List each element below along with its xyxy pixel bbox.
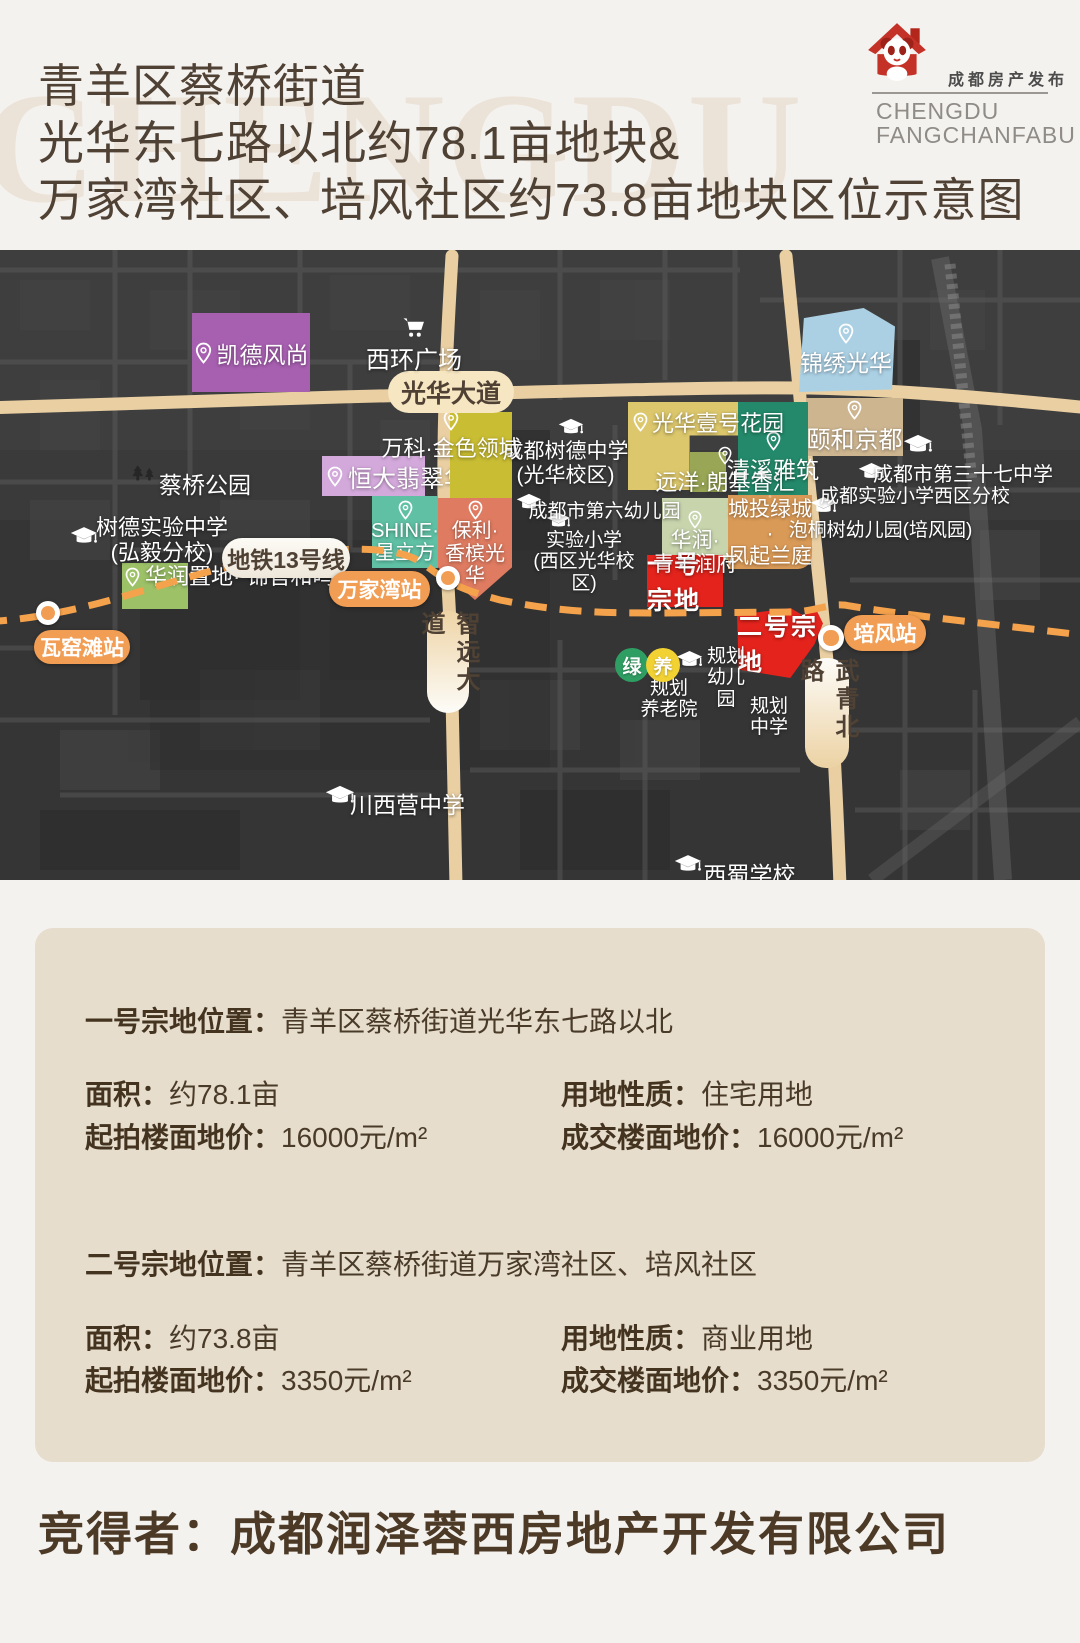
- school-cap-icon: [558, 418, 584, 438]
- plot1-location-value: 青羊区蔡桥街道光华东七路以北: [281, 1006, 673, 1037]
- plot2-use-row: 用地性质：商业用地: [561, 1317, 813, 1357]
- poster-page: CHENGDU 青羊区蔡桥街道 光华东七路以北约78.1亩地块& 万家湾社区、培…: [0, 0, 1080, 1643]
- plot2-final-price-row: 成交楼面地价：3350元/m²: [561, 1359, 888, 1399]
- location-map: 凯德风尚 恒大翡翠华庭 万科·金色领域 SHINE· 星立方 保利· 香槟光华 …: [0, 250, 1080, 880]
- station-dot-wayaotan: [36, 601, 60, 625]
- plot2-area-row: 面积：约73.8亩: [85, 1317, 280, 1357]
- label-planned-kindergarten: 规划 幼儿园: [700, 646, 752, 710]
- school-label-shiyan-west: 成都实验小学西区分校: [840, 481, 990, 508]
- school-label-shude-hongyi: 树德实验中学 (弘毅分校): [92, 516, 232, 565]
- station-label-wanjiawan: 万家湾站: [329, 571, 430, 607]
- winner-company: 成都润泽蓉西房地产开发有限公司: [230, 1508, 950, 1560]
- school-label-paotong: 泡桐树幼儿园(培风园): [808, 515, 953, 542]
- station-label-peifeng: 培风站: [844, 615, 926, 651]
- header: CHENGDU 青羊区蔡桥街道 光华东七路以北约78.1亩地块& 万家湾社区、培…: [0, 0, 1080, 250]
- school-label-no6-kindergarten: 成都市第六幼儿园: [542, 496, 667, 523]
- station-dot-peifeng: [818, 625, 844, 651]
- school-cap-icon: [674, 854, 702, 876]
- plot1-final-price-row: 成交楼面地价：16000元/m²: [561, 1116, 903, 1156]
- plot2-start-price-row: 起拍楼面地价：3350元/m²: [85, 1359, 412, 1399]
- logo-en-line1: CHENGDU: [876, 98, 999, 125]
- plot1-start-price-row: 起拍楼面地价：16000元/m²: [85, 1116, 427, 1156]
- poi-label-xihuan-plaza: 西环广场: [360, 340, 468, 375]
- park-trees-icon: [131, 464, 156, 485]
- badge-elder-care: 养: [646, 648, 680, 682]
- road-label-wuqing: 武青北路: [805, 658, 849, 768]
- school-cap-icon: [903, 434, 933, 457]
- plot2-location-row: 二号宗地位置：青羊区蔡桥街道万家湾社区、培风社区: [85, 1243, 757, 1283]
- school-label-shude-guanghua: 成都树德中学 (光华校区): [498, 440, 633, 487]
- logo-en-line2: FANGCHANFABU: [876, 122, 1076, 149]
- school-cap-icon: [676, 650, 703, 671]
- school-label-xishu: 西蜀学校: [702, 856, 797, 880]
- poi-label-caiqiao-park: 蔡桥公园: [157, 466, 253, 500]
- label-planned-elder-home: 规划 养老院: [640, 678, 698, 721]
- plot1-area-row: 面积：约78.1亩: [85, 1073, 280, 1113]
- school-label-shiyan-xi: 实验小学 (西区光华校区): [524, 530, 644, 594]
- label-planned-middle-school: 规划 中学: [746, 696, 792, 739]
- logo-house-panda-icon: [864, 20, 930, 84]
- page-title-line3: 万家湾社区、培风社区约73.8亩地块区位示意图: [38, 164, 1025, 230]
- logo-cn-text: 成都房产发布: [948, 66, 1068, 90]
- badge-green-space: 绿: [615, 648, 649, 682]
- winner-label: 竞得者：: [38, 1508, 230, 1560]
- plot-info-panel: 一号宗地位置：青羊区蔡桥街道光华东七路以北 面积：约78.1亩 用地性质：住宅用…: [35, 928, 1045, 1462]
- road-label-zhiyuan: 智远大道: [427, 611, 469, 713]
- school-label-chuanxiying: 川西营中学: [355, 786, 460, 820]
- shopping-cart-icon: [401, 316, 427, 339]
- winner-line: 竞得者：成都润泽蓉西房地产开发有限公司: [38, 1498, 950, 1564]
- plot1-use-row: 用地性质：住宅用地: [561, 1073, 813, 1113]
- station-label-wayaotan: 瓦窑滩站: [34, 630, 130, 664]
- plot1-location-label: 一号宗地位置：: [85, 1006, 281, 1037]
- metro-line-label: 地铁13号线: [222, 538, 350, 578]
- station-dot-wanjiawan: [436, 566, 460, 590]
- logo-divider: [872, 92, 1048, 94]
- plot1-location-row: 一号宗地位置：青羊区蔡桥街道光华东七路以北: [85, 1000, 673, 1040]
- road-label-guanghua: 光华大道: [388, 371, 514, 413]
